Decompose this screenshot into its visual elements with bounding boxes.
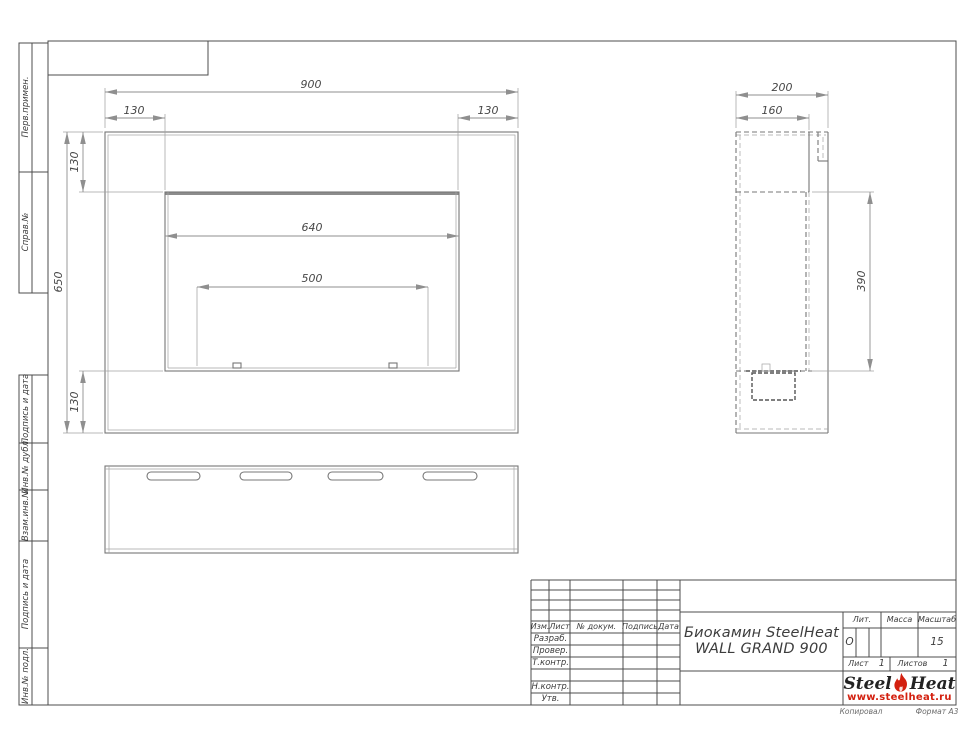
document-title-line2: WALL GRAND 900: [695, 642, 828, 657]
tb-list-cell: Лист 1: [843, 657, 890, 671]
tb-listov-cell: Листов 1: [890, 657, 956, 671]
tb-list-value: 1: [879, 659, 885, 669]
side-burner: [752, 373, 795, 400]
tb-row-razrab: Разраб.: [531, 633, 570, 645]
margin-label-perv-primen: Перв.примен.: [21, 76, 31, 137]
tb-row-prover: Провер.: [531, 645, 570, 657]
document-title-line1: Биокамин SteelHeat: [684, 626, 839, 641]
logo-steel-text: Steel: [844, 676, 892, 693]
margin-label-sprav-no: Справ.№: [21, 213, 31, 252]
tb-col-podpis: Подпись: [623, 621, 657, 633]
dim-side-opening-height: 390: [855, 271, 868, 292]
dim-front-width: 900: [301, 78, 322, 91]
tb-col-list: Лист: [549, 621, 570, 633]
logo-heat-text: Heat: [910, 676, 956, 693]
bottom-view: [105, 466, 518, 553]
tb-row-utv: Утв.: [531, 693, 570, 705]
inner-frame: [48, 41, 956, 705]
burner-tab-left: [233, 363, 241, 368]
tb-masshtab-value: 15: [918, 628, 956, 657]
steelheat-logo: Steel Heat www.steelheat.ru: [843, 671, 956, 707]
tb-massa-label: Масса: [881, 612, 918, 628]
document-title: Биокамин SteelHeat WALL GRAND 900: [682, 612, 841, 671]
vent-slot: [147, 472, 200, 480]
vent-slot: [240, 472, 292, 480]
side-view: [736, 132, 828, 433]
margin-label-podpis-data-2: Подпись и дата: [21, 559, 31, 629]
vent-slot: [328, 472, 383, 480]
dim-front-margin-bottom: 130: [68, 392, 81, 413]
dim-front-margin-right: 130: [478, 104, 499, 117]
tb-col-izm: Изм.: [531, 621, 549, 633]
tb-masshtab-label: Масштаб: [918, 612, 956, 628]
margin-label-inv-dubl: Инв.№ дубл.: [21, 438, 31, 493]
dim-opening-width: 640: [302, 221, 323, 234]
tb-lit-value: О: [843, 628, 856, 657]
tb-col-dokum: № докум.: [570, 621, 623, 633]
sheet-frame: [48, 41, 956, 705]
dim-side-depth: 200: [772, 81, 793, 94]
margin-label-podpis-data-1: Подпись и дата: [21, 374, 31, 444]
dim-front-height: 650: [52, 272, 65, 293]
tb-list-label: Лист: [848, 660, 868, 668]
top-left-designation-box: [48, 41, 208, 75]
logo-url: www.steelheat.ru: [847, 693, 952, 704]
dim-front-margin-left: 130: [124, 104, 145, 117]
tb-listov-value: 1: [942, 659, 948, 669]
footer-kopiroval: Копировал: [826, 706, 896, 718]
dim-side-body-depth: 160: [762, 104, 783, 117]
tb-listov-label: Листов: [898, 660, 928, 668]
burner-tab-right: [389, 363, 397, 368]
margin-label-inv-podl: Инв.№ подл.: [21, 648, 31, 704]
side-burner-tab: [762, 364, 770, 371]
tb-row-tkontr: Т.контр.: [531, 657, 570, 669]
tb-lit-label: Лит.: [843, 612, 881, 628]
margin-label-vzam-inv: Взам.инв.№: [21, 489, 31, 541]
vent-slot: [423, 472, 477, 480]
bottom-panel: [105, 466, 518, 553]
tb-col-data: Дата: [657, 621, 680, 633]
footer-format: Формат А3: [902, 706, 970, 718]
dim-front-margin-top: 130: [68, 152, 81, 173]
dimension-annotations: 900 130 130 640 500 650 130 130 200 160: [52, 78, 874, 433]
tb-row-nkontr: Н.контр.: [531, 681, 570, 693]
flame-icon: [893, 673, 909, 693]
dim-burner-width: 500: [302, 272, 323, 285]
drawing-sheet: 900 130 130 640 500 650 130 130 200 160: [0, 0, 970, 749]
